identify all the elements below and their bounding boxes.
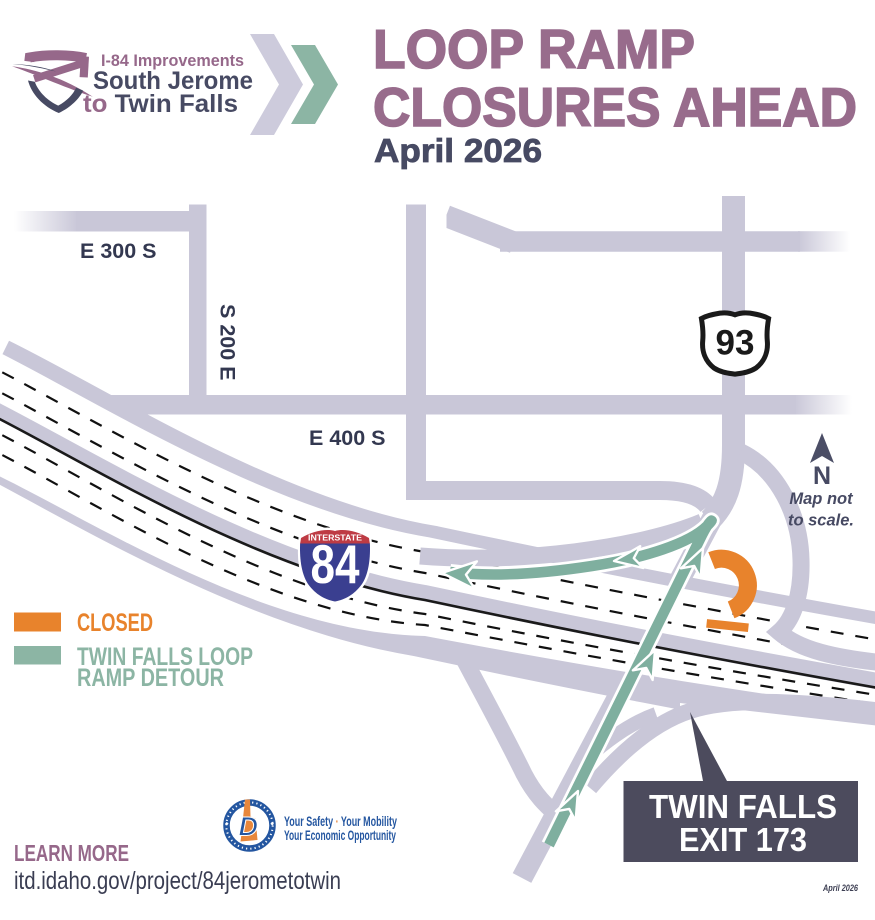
svg-text:LOOP RAMP: LOOP RAMP	[373, 18, 695, 80]
svg-text:April 2026: April 2026	[374, 132, 542, 169]
svg-text:itd.idaho.gov/project/84jerome: itd.idaho.gov/project/84jerometotwin	[14, 867, 341, 895]
svg-text:D: D	[239, 812, 259, 842]
svg-text:April 2026: April 2026	[822, 883, 859, 893]
svg-text:Map not: Map not	[789, 490, 854, 508]
svg-text:93: 93	[716, 324, 755, 363]
svg-text:E 400 S: E 400 S	[309, 426, 386, 450]
svg-text:Your Economic Opportunity: Your Economic Opportunity	[284, 828, 396, 843]
svg-text:E 300 S: E 300 S	[80, 239, 157, 263]
svg-text:to Twin Falls: to Twin Falls	[83, 90, 238, 118]
svg-text:to scale.: to scale.	[788, 512, 854, 530]
svg-text:S 200 E: S 200 E	[216, 304, 240, 381]
svg-text:CLOSURES AHEAD: CLOSURES AHEAD	[373, 76, 857, 138]
svg-text:N: N	[813, 462, 831, 490]
svg-text:RAMP DETOUR: RAMP DETOUR	[77, 664, 224, 692]
svg-text:TWIN FALLS: TWIN FALLS	[649, 788, 837, 825]
svg-text:EXIT 173: EXIT 173	[679, 821, 807, 858]
svg-text:Your Safety · Your Mobility: Your Safety · Your Mobility	[284, 814, 397, 829]
svg-text:CLOSED: CLOSED	[77, 609, 153, 637]
svg-text:84: 84	[311, 533, 360, 595]
svg-text:LEARN MORE: LEARN MORE	[14, 840, 129, 866]
